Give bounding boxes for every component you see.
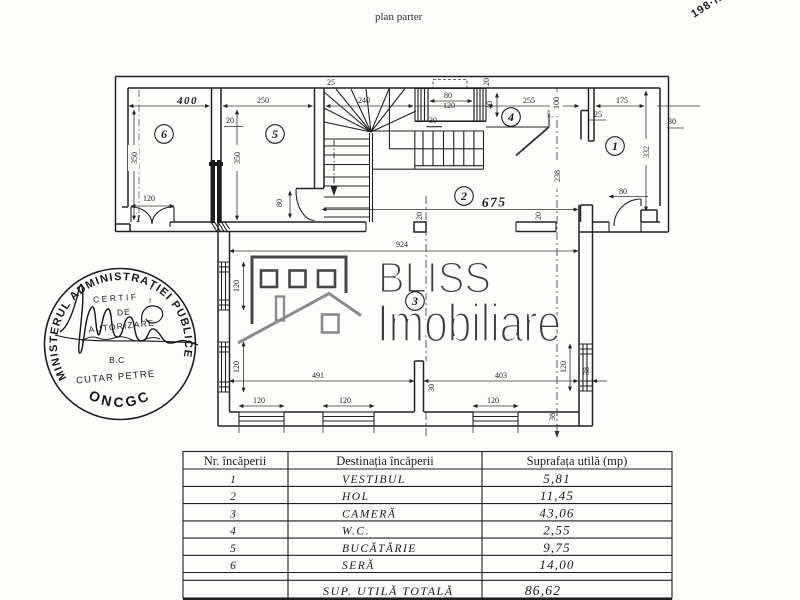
svg-text:255: 255 [523, 96, 535, 105]
svg-text:20: 20 [482, 78, 491, 86]
svg-text:38: 38 [548, 413, 557, 421]
svg-text:Nr. încăperii: Nr. încăperii [204, 454, 267, 468]
svg-text:1: 1 [136, 214, 141, 225]
svg-text:11,45: 11,45 [540, 488, 574, 503]
svg-text:Suprafața utilă (mp): Suprafața utilă (mp) [527, 454, 628, 468]
svg-text:400: 400 [176, 95, 198, 107]
svg-text:120: 120 [232, 361, 241, 373]
svg-text:332: 332 [642, 146, 651, 158]
svg-text:175: 175 [616, 96, 628, 105]
svg-text:SUP. UTILĂ TOTALĂ: SUP. UTILĂ TOTALĂ [323, 584, 454, 598]
svg-text:I: I [149, 298, 151, 305]
svg-text:Destinația încăperii: Destinația încăperii [336, 454, 434, 468]
svg-text:20: 20 [534, 212, 543, 220]
svg-text:BUCĂTĂRIE: BUCĂTĂRIE [342, 541, 417, 555]
svg-text:25: 25 [594, 110, 602, 119]
svg-text:86,62: 86,62 [525, 583, 561, 598]
svg-text:80: 80 [444, 91, 452, 100]
svg-text:9,75: 9,75 [543, 540, 571, 555]
svg-text:30: 30 [668, 117, 676, 126]
svg-text:25: 25 [327, 78, 335, 87]
svg-text:1: 1 [612, 139, 618, 153]
svg-text:20: 20 [226, 116, 234, 125]
svg-text:14,00: 14,00 [539, 557, 574, 572]
svg-text:5: 5 [272, 127, 278, 141]
svg-text:675: 675 [482, 194, 507, 210]
svg-text:3: 3 [411, 294, 418, 308]
svg-text:40: 40 [485, 101, 494, 109]
svg-text:DE: DE [117, 307, 131, 318]
svg-text:B.C: B.C [109, 355, 125, 365]
svg-text:80: 80 [275, 199, 284, 207]
svg-text:6: 6 [230, 560, 236, 572]
svg-text:4: 4 [507, 110, 514, 124]
svg-text:120: 120 [339, 396, 351, 405]
svg-text:3: 3 [229, 508, 236, 520]
svg-text:6: 6 [161, 127, 167, 141]
svg-text:2,55: 2,55 [543, 523, 571, 538]
svg-text:30: 30 [427, 384, 436, 392]
svg-text:120: 120 [443, 101, 455, 110]
svg-text:350: 350 [233, 152, 242, 164]
svg-text:120: 120 [559, 361, 568, 373]
svg-text:30: 30 [429, 116, 437, 125]
svg-text:5: 5 [230, 543, 236, 555]
svg-text:100: 100 [552, 97, 561, 109]
svg-text:238: 238 [553, 170, 562, 182]
svg-text:120: 120 [487, 396, 499, 405]
svg-text:2: 2 [230, 491, 236, 503]
svg-text:4: 4 [230, 526, 236, 538]
svg-text:120: 120 [232, 280, 241, 292]
svg-text:491: 491 [312, 371, 324, 380]
svg-text:403: 403 [495, 371, 507, 380]
svg-text:plan parter: plan parter [375, 11, 423, 23]
svg-text:Imobiliare: Imobiliare [377, 294, 561, 354]
svg-text:VESTIBUL: VESTIBUL [342, 474, 406, 486]
svg-text:120: 120 [253, 396, 265, 405]
svg-text:924: 924 [396, 240, 408, 249]
svg-text:W.C.: W.C. [342, 526, 370, 538]
svg-text:1: 1 [230, 474, 236, 486]
svg-text:20: 20 [415, 212, 424, 220]
svg-text:80: 80 [619, 187, 627, 196]
svg-text:2: 2 [460, 189, 467, 203]
svg-text:HOL: HOL [341, 491, 370, 503]
svg-text:250: 250 [257, 96, 269, 105]
svg-text:120: 120 [143, 194, 155, 203]
svg-text:38: 38 [582, 367, 591, 375]
svg-text:CAMERĂ: CAMERĂ [342, 506, 396, 520]
svg-text:350: 350 [130, 152, 139, 164]
svg-text:240: 240 [358, 96, 370, 105]
svg-text:5,81: 5,81 [543, 471, 571, 486]
svg-text:43,06: 43,06 [539, 505, 574, 520]
svg-text:SERĂ: SERĂ [342, 558, 375, 572]
